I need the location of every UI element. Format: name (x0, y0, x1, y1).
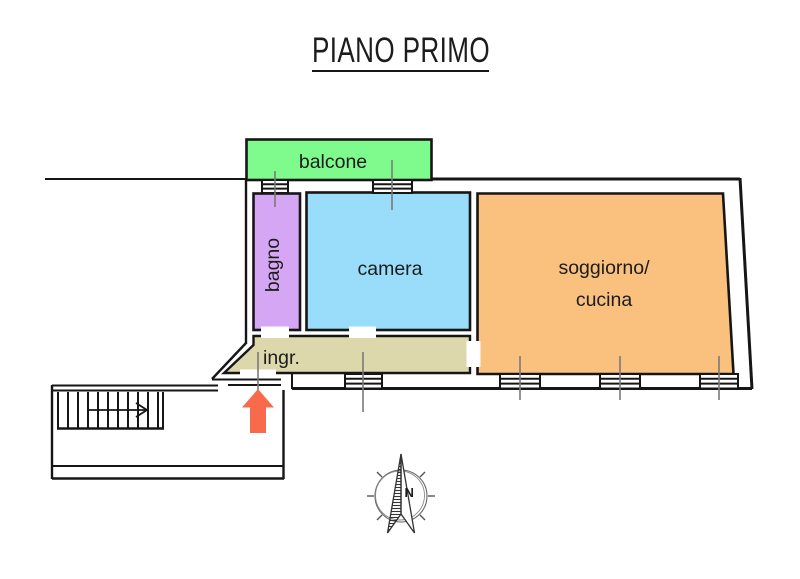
outer-wall-right-slanted (740, 178, 752, 389)
page-title: PIANO PRIMO (312, 31, 490, 70)
room-ingresso (224, 336, 470, 373)
room-bagno-label: bagno (262, 238, 284, 292)
room-soggiorno-label-line2: cucina (576, 289, 633, 311)
floor-plan-page: PIANO PRIMO (0, 0, 800, 579)
compass-rose-icon: N (367, 454, 435, 533)
door-opening-bagno (261, 327, 289, 339)
room-camera-label: camera (357, 258, 422, 280)
compass-needle-left (388, 454, 402, 533)
door-opening-soggiorno (467, 341, 481, 367)
door-opening-camera (349, 327, 376, 339)
compass-north-label: N (405, 485, 414, 500)
room-ingresso-label: ingr. (263, 347, 300, 369)
room-balcone-label: balcone (299, 151, 367, 173)
room-soggiorno-label-line1: soggiorno/ (558, 257, 650, 279)
room-soggiorno-cucina (478, 194, 734, 375)
entrance-arrow-icon (242, 389, 274, 433)
floor-plan-drawing: PIANO PRIMO (0, 0, 800, 579)
